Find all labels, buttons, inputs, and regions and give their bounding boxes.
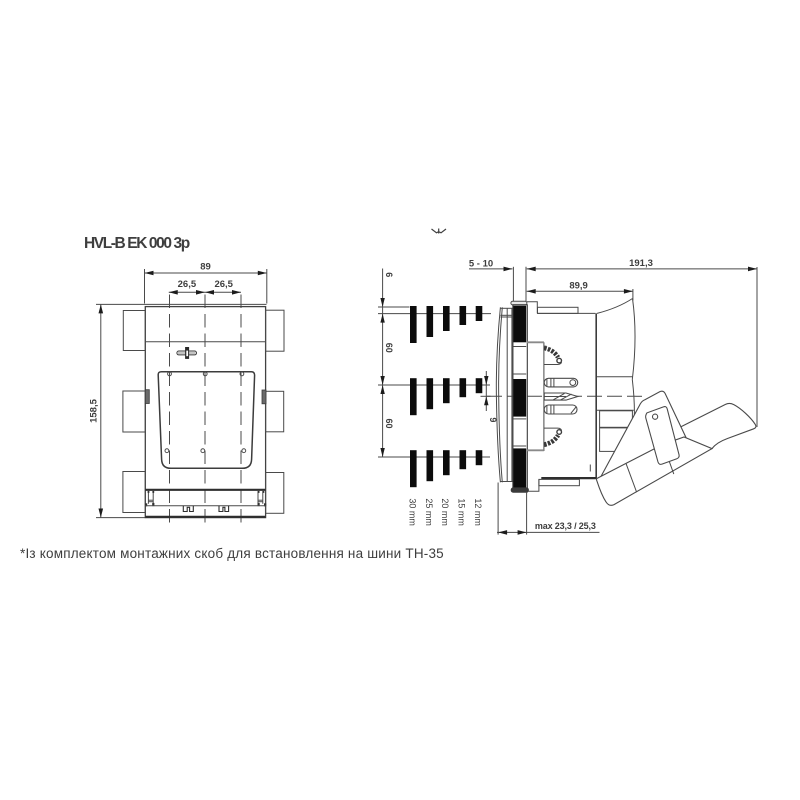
svg-text:26,5: 26,5 [178,279,197,290]
svg-text:12 mm: 12 mm [473,498,483,526]
svg-text:25 mm: 25 mm [424,498,434,526]
svg-text:89,9: 89,9 [569,280,588,291]
svg-text:30 mm: 30 mm [407,498,417,526]
svg-text:6: 6 [384,272,394,277]
svg-text:60: 60 [384,343,394,353]
svg-text:*Із комплектом монтажних скоб: *Із комплектом монтажних скоб для встано… [20,546,444,561]
svg-text:26,5: 26,5 [214,279,233,290]
svg-text:60: 60 [384,418,394,428]
svg-text:158,5: 158,5 [88,398,99,422]
svg-text:5 - 10: 5 - 10 [469,258,493,269]
svg-text:9: 9 [488,417,498,422]
svg-text:15 mm: 15 mm [457,498,467,526]
svg-text:191,3: 191,3 [629,258,653,269]
svg-text:HVL-B EK 000 3p: HVL-B EK 000 3p [84,235,190,252]
svg-text:20 mm: 20 mm [440,498,450,526]
svg-text:89: 89 [200,261,211,272]
svg-text:max 23,3 / 25,3: max 23,3 / 25,3 [535,521,596,531]
